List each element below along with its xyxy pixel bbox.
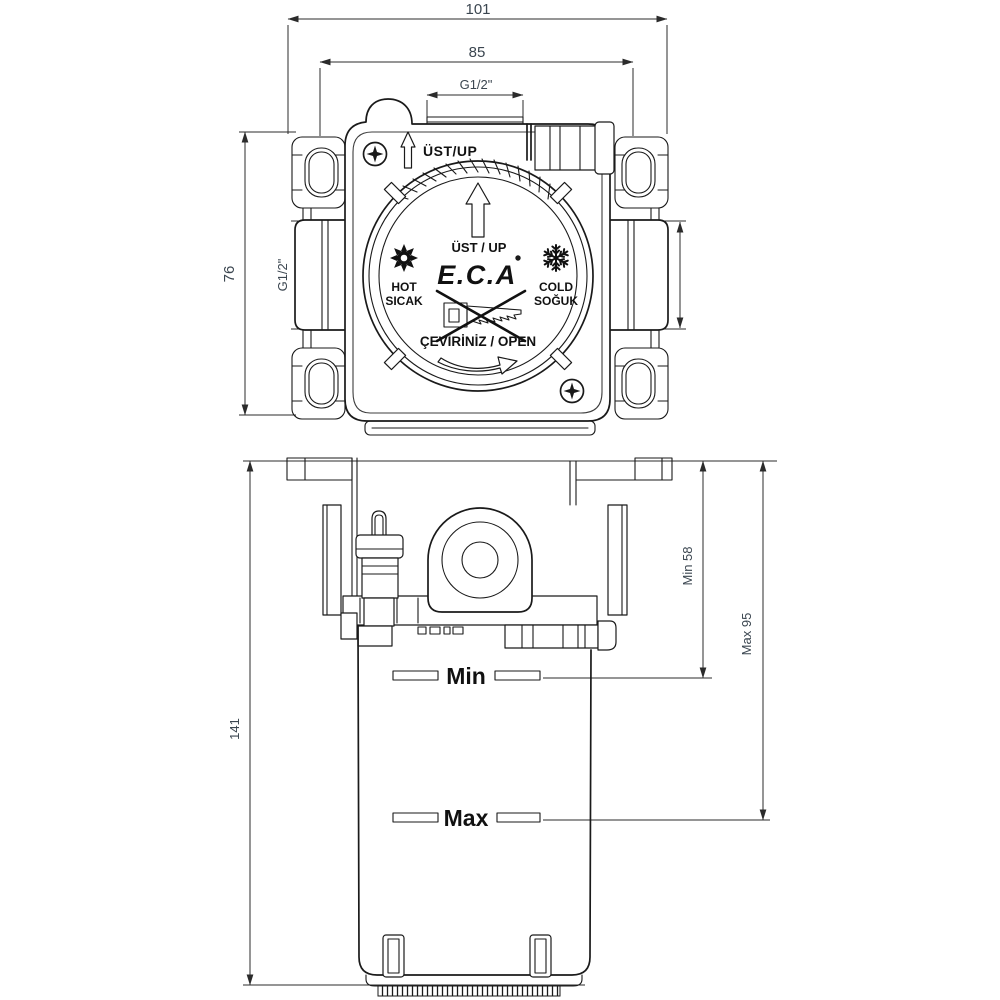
dim-left-port-text: G1/2"	[275, 258, 290, 291]
hot-label-tr: SICAK	[385, 294, 423, 308]
up-label-inner: ÜST / UP	[452, 240, 507, 255]
cold-label-tr: SOĞUK	[534, 293, 578, 308]
right-port-flange	[608, 505, 627, 615]
open-label: ÇEVİRİNİZ / OPEN	[420, 334, 536, 349]
dim-mount-spacing-text: 85	[469, 44, 486, 61]
phillips-screw-top-left	[364, 143, 387, 166]
dim-max-depth-text: Max 95	[739, 613, 754, 656]
brand-dot	[515, 255, 520, 260]
valve-technical-drawing: 101 85 G1/2" 76 G1/2"	[0, 0, 1000, 1000]
up-label-outer: ÜST/UP	[423, 143, 477, 159]
technical-drawing-page: 101 85 G1/2" 76 G1/2"	[0, 0, 1000, 1000]
left-port-flange	[323, 505, 341, 615]
outlet-boss	[428, 508, 532, 612]
max-label: Max	[444, 805, 489, 831]
dim-total-height-text: 141	[227, 718, 242, 740]
dim-top-port-text: G1/2"	[460, 77, 493, 92]
cold-label-en: COLD	[539, 280, 573, 294]
serrated-base	[378, 986, 560, 996]
min-label: Min	[446, 663, 486, 689]
right-inlet-port	[610, 220, 668, 330]
left-inlet-port	[295, 220, 345, 330]
dim-mount-height-text: 76	[221, 266, 238, 283]
hot-label-en: HOT	[391, 280, 417, 294]
brand-text: E.C.A	[437, 260, 517, 290]
brand-logo: E.C.A	[437, 255, 520, 290]
threaded-collar	[535, 122, 614, 174]
phillips-screw-bottom-right	[561, 380, 584, 403]
dim-overall-width-text: 101	[465, 1, 490, 18]
lower-step-section	[505, 621, 616, 650]
dim-min-depth-text: Min 58	[680, 546, 695, 585]
